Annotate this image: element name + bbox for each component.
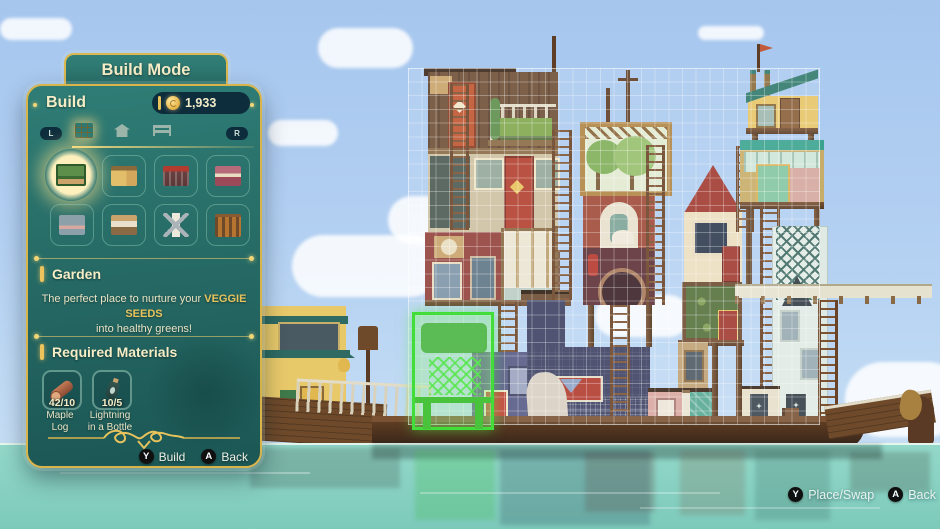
module-thumbnail-icon (59, 215, 85, 235)
guest-roof (740, 140, 824, 150)
ladder (552, 130, 572, 300)
y-key-icon: Y (139, 449, 154, 464)
ripple (420, 492, 720, 494)
material-count: 10/5 (94, 397, 130, 409)
reflection (585, 452, 655, 512)
walkway-posts (735, 296, 932, 304)
garden-leg (423, 403, 431, 429)
round-rug (598, 268, 646, 305)
place-swap-label: Place/Swap (808, 488, 874, 502)
hud-back-button[interactable]: A Back (888, 487, 936, 502)
mode-title: Build Mode (102, 61, 191, 80)
build-item-8[interactable] (206, 204, 250, 246)
flourish-ornament (48, 426, 240, 450)
build-item-2[interactable] (102, 155, 146, 197)
divider (36, 258, 252, 259)
cloud (318, 28, 413, 68)
cabin-window (756, 104, 776, 128)
build-item-7[interactable] (154, 204, 198, 246)
left-bumper-button[interactable]: L (40, 127, 62, 140)
tree-trunk (596, 172, 600, 190)
bench-icon (153, 125, 171, 136)
gable-door (722, 246, 740, 282)
support-beam (740, 202, 824, 209)
back-button-label: Back (221, 450, 248, 464)
flag (760, 44, 773, 52)
gable-roof (684, 165, 742, 213)
shop-thumbnail-icon (215, 166, 241, 186)
build-item-6[interactable] (102, 204, 146, 246)
description-text: The perfect place to nurture your (42, 293, 205, 305)
gold-dot (250, 103, 254, 107)
tab-furniture[interactable] (153, 125, 171, 136)
guesthouse-thumbnail-icon (111, 166, 137, 186)
hud-back-label: Back (908, 488, 936, 502)
description-text-2: into healthy greens! (36, 322, 252, 337)
build-item-5[interactable] (50, 204, 94, 246)
divider-dot (249, 256, 254, 261)
cloud (0, 18, 72, 40)
garden-placement[interactable] (412, 312, 494, 430)
cabin-door (780, 98, 800, 130)
star-mark (756, 403, 762, 409)
kitchen-band (428, 148, 558, 154)
reflection (850, 452, 930, 492)
heading-bar (40, 344, 44, 360)
stilt (646, 305, 652, 347)
selected-item-name: Garden (52, 266, 101, 282)
place-swap-button[interactable]: Y Place/Swap (788, 487, 874, 502)
stilt (588, 305, 594, 347)
build-panel: Build 1,933 L R Garden (26, 84, 262, 468)
divider-dot (249, 334, 254, 339)
mast-crossbar (618, 78, 638, 81)
annex-window (470, 256, 496, 300)
hud-prompts: Y Place/Swap A Back (780, 487, 936, 502)
currency-amount: 1,933 (185, 96, 216, 110)
y-key-icon: Y (788, 487, 803, 502)
divider-dot (34, 256, 39, 261)
cloud (698, 26, 764, 40)
reflection (680, 450, 745, 515)
cloud (268, 120, 338, 146)
annex-emblem (441, 239, 457, 255)
heading-bar (40, 266, 44, 282)
game-screen: Build Mode Build 1,933 L R (0, 0, 940, 529)
ladder (450, 84, 469, 230)
house-icon (114, 124, 130, 137)
ship-bell (338, 358, 350, 372)
reflection (755, 450, 830, 520)
divider (36, 336, 252, 337)
corral-thumbnail-icon (215, 214, 241, 237)
panel-section-title: Build (46, 94, 86, 112)
material-count: 42/10 (44, 397, 80, 409)
ripple (60, 472, 310, 474)
dock-window (278, 322, 340, 352)
stilt (746, 209, 752, 285)
kitchen-door (504, 156, 534, 232)
currency-display: 1,933 (152, 92, 250, 114)
birdhouse (358, 326, 378, 350)
deck-room-window (656, 398, 676, 418)
tab-underline (72, 146, 254, 148)
tab-buildings[interactable] (75, 123, 93, 138)
build-button-label: Build (159, 450, 186, 464)
selected-item-heading: Garden (40, 266, 101, 282)
garden-leg (475, 403, 483, 429)
building-maroon (583, 248, 655, 305)
tower-window (800, 348, 820, 380)
annex-window (432, 262, 462, 300)
kitchen-window (474, 158, 504, 190)
build-item-4[interactable] (206, 155, 250, 197)
garden-thumbnail-icon (56, 164, 86, 186)
cactus (490, 98, 500, 140)
kitchen-thumbnail-icon (163, 166, 189, 186)
cloud (292, 235, 442, 297)
flag-pole (757, 44, 760, 72)
building-icon (75, 123, 93, 138)
guest-room (790, 168, 820, 202)
terrace-floor (488, 140, 558, 146)
right-bumper-button[interactable]: R (226, 127, 248, 140)
plant-room-door (718, 310, 738, 342)
build-button[interactable]: Y Build (139, 449, 186, 464)
item-description: The perfect place to nurture your VEGGIE… (36, 292, 252, 337)
currency-bar (158, 96, 161, 110)
ladder (646, 145, 665, 305)
material-card-lightning-bottle: 10/5 (92, 370, 132, 410)
back-button[interactable]: A Back (201, 449, 248, 464)
bedroom-thumbnail-icon (111, 215, 137, 235)
red-lamp (588, 254, 598, 276)
white-table (612, 230, 634, 244)
panel-prompts: Y Build A Back (28, 449, 248, 464)
ripple (640, 507, 880, 509)
small-room-window (684, 350, 704, 382)
windmill-thumbnail-icon (163, 213, 189, 237)
glim-coin-icon (166, 96, 180, 110)
a-key-icon: A (888, 487, 903, 502)
tab-houses[interactable] (114, 124, 130, 137)
material-label-line: Lightning (68, 410, 152, 422)
ladder (610, 305, 630, 430)
tower-window (780, 310, 800, 342)
a-key-icon: A (201, 449, 216, 464)
reflection (415, 450, 495, 520)
mode-tab: Build Mode (64, 53, 228, 86)
build-item-3[interactable] (154, 155, 198, 197)
divider-dot (34, 334, 39, 339)
gold-dot (33, 103, 37, 107)
guest-doors (756, 164, 790, 206)
terrace-planter (500, 118, 552, 141)
build-item-garden-selected[interactable] (45, 149, 97, 201)
foundry-tower (527, 300, 565, 347)
materials-title: Required Materials (52, 344, 177, 360)
reflection (250, 448, 400, 488)
material-card-maple-log: 42/10 (42, 370, 82, 410)
garden-trellis (429, 357, 481, 395)
materials-heading: Required Materials (40, 344, 177, 360)
garden-canopy (421, 323, 487, 353)
